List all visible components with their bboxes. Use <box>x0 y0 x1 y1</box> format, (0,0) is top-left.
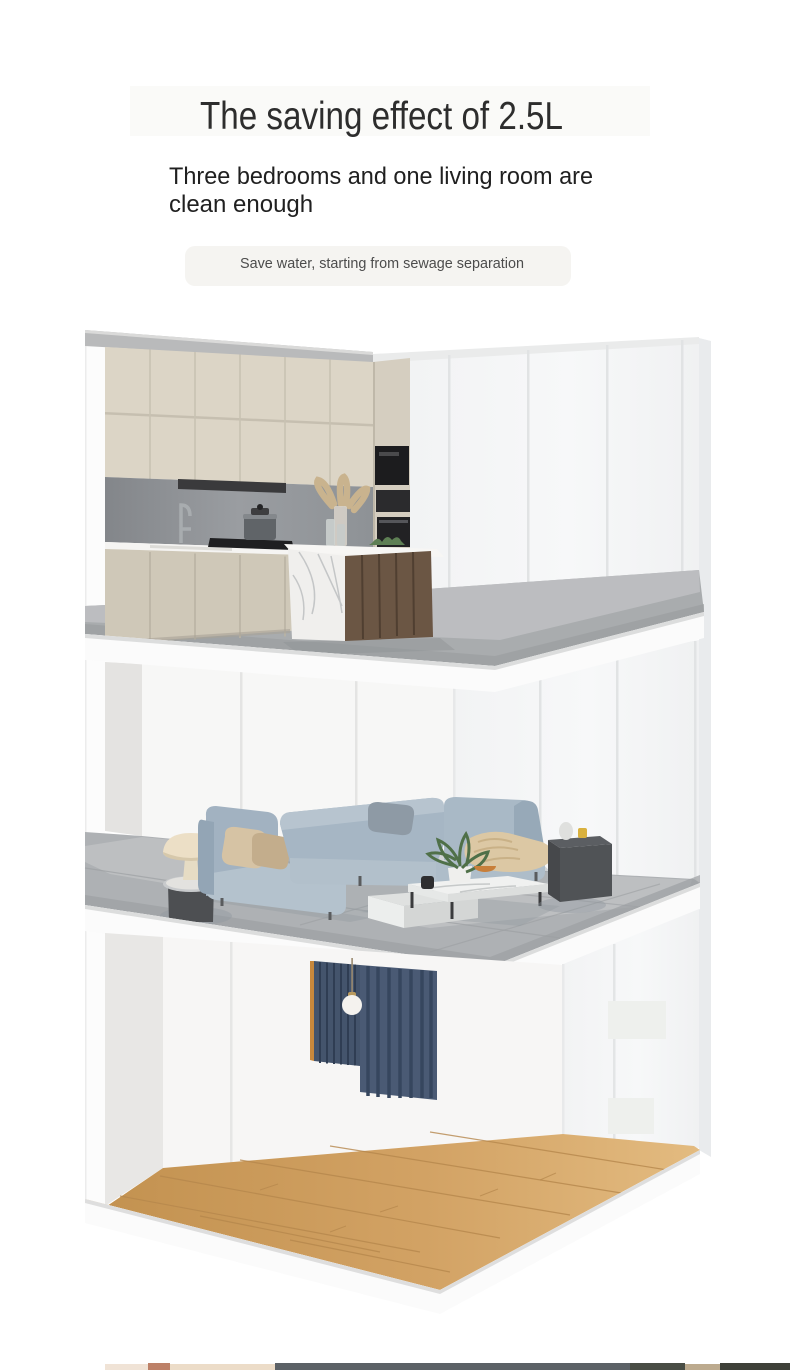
svg-text:The saving effect of 2.5L: The saving effect of 2.5L <box>200 95 563 138</box>
svg-text:Save water, starting from sewa: Save water, starting from sewage separat… <box>240 255 524 272</box>
svg-text:clean enough: clean enough <box>169 191 313 218</box>
svg-text:Three bedrooms and one living: Three bedrooms and one living room are <box>169 163 593 190</box>
